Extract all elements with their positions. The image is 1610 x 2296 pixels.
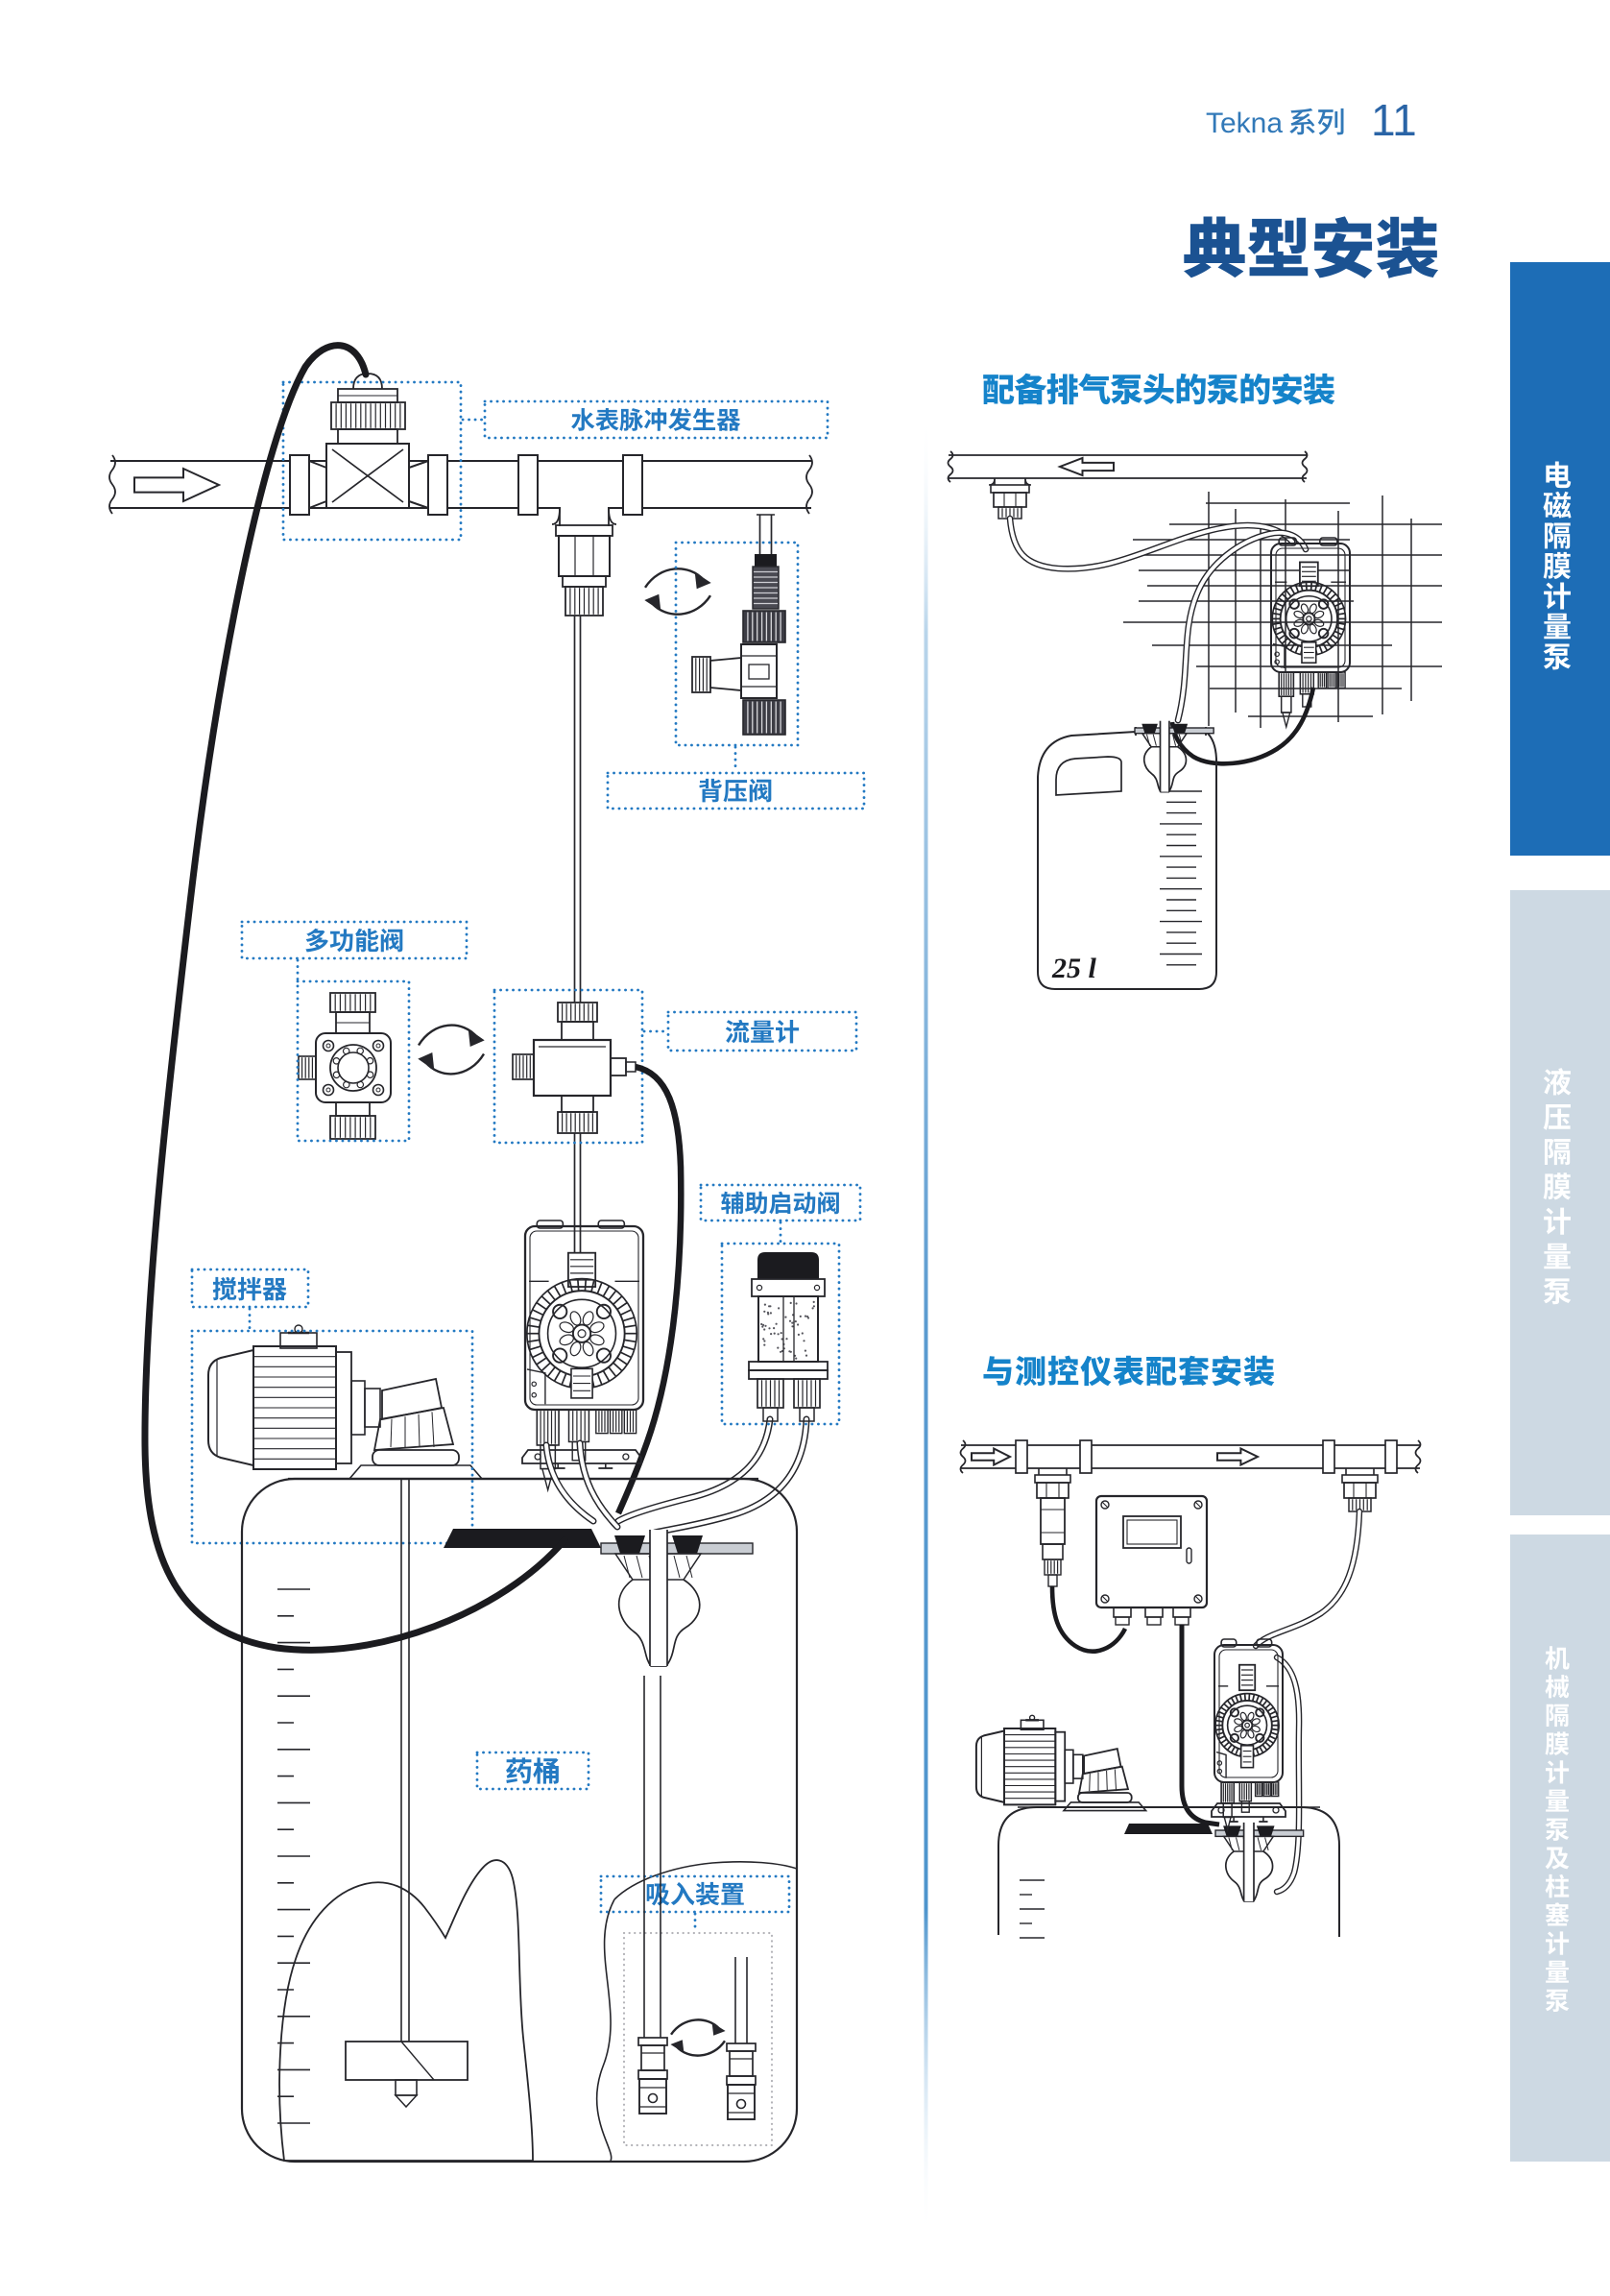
svg-text:25 l: 25 l	[1051, 953, 1097, 984]
svg-text:11: 11	[1371, 95, 1417, 145]
svg-text:Tekna: Tekna	[1206, 108, 1283, 139]
